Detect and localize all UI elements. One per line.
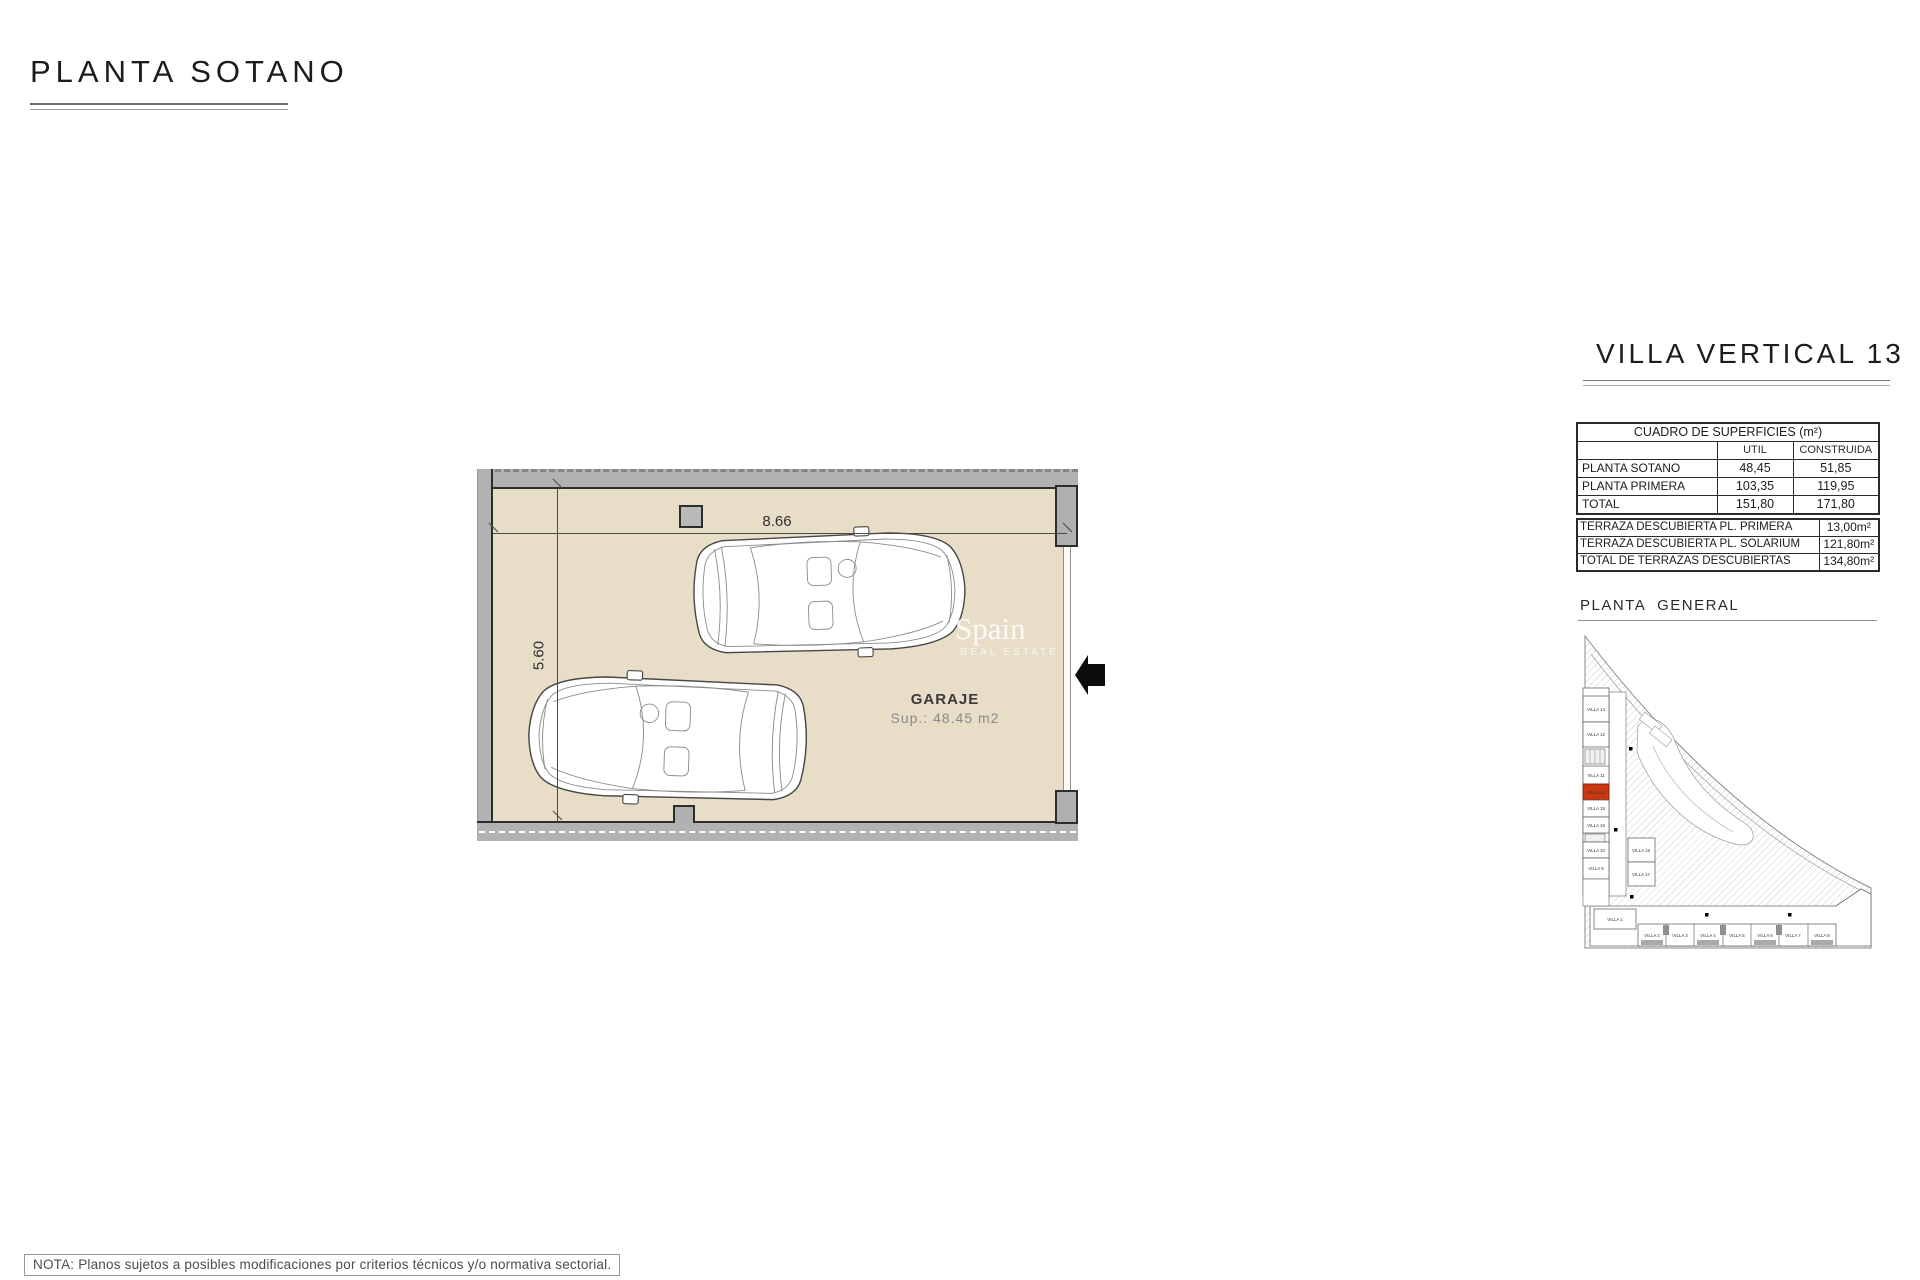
garage-front xyxy=(1641,940,1663,945)
page-title: PLANTA SOTANO xyxy=(30,54,349,90)
structural-column xyxy=(679,505,703,528)
surfaces-col-construida: CONSTRUIDA xyxy=(1793,442,1879,460)
row-value: 13,00m² xyxy=(1819,519,1879,537)
garage-door-opening xyxy=(1063,547,1071,790)
row-construida: 51,85 xyxy=(1793,460,1879,478)
surfaces-col-util: UTIL xyxy=(1717,442,1793,460)
table-row: TERRAZA DESCUBIERTA PL. PRIMERA 13,00m² xyxy=(1577,519,1879,537)
villa-label: VILLA 6 xyxy=(1757,933,1773,938)
wall-bottom-dashed-line xyxy=(479,831,1076,833)
dimension-line-horizontal xyxy=(493,533,1067,534)
row-util: 48,45 xyxy=(1717,460,1793,478)
watermark-brand: Spain xyxy=(955,613,1026,644)
wall-bottom xyxy=(477,821,1078,841)
garage-front xyxy=(1754,940,1776,945)
villa-label: VILLA 1 xyxy=(1607,917,1623,922)
terraces-table: TERRAZA DESCUBIERTA PL. PRIMERA 13,00m² … xyxy=(1576,518,1880,572)
utility-block xyxy=(1585,834,1605,842)
footer-note: NOTA: Planos sujetos a posibles modifica… xyxy=(24,1254,620,1276)
car-top-view-1 xyxy=(688,526,972,660)
surfaces-col-empty xyxy=(1577,442,1717,460)
plan-dot xyxy=(1788,913,1792,917)
villa-label: VILLA 16 xyxy=(1587,823,1605,828)
villa-label: VILLA 18 xyxy=(1632,848,1650,853)
site-plan-underline xyxy=(1578,620,1877,621)
row-label: TOTAL DE TERRAZAS DESCUBIERTAS xyxy=(1577,554,1819,572)
row-value: 121,80m² xyxy=(1819,537,1879,554)
wall-stub-bottom-right xyxy=(1055,790,1078,824)
table-row: TOTAL 151,80 171,80 xyxy=(1577,496,1879,515)
room-name: GARAJE xyxy=(865,691,1025,708)
plan-dot xyxy=(1630,895,1634,899)
garage-floor-plan: 8.66 5.60 Spain REAL ESTATE GARAJE Sup.:… xyxy=(477,469,1078,841)
villa-label: VILLA 3 xyxy=(1672,933,1688,938)
villa-label-highlighted: VILLA 13 xyxy=(1587,790,1605,795)
villa-label: VILLA 2 xyxy=(1644,933,1660,938)
stair-glyph xyxy=(1776,925,1782,935)
villa-title: VILLA VERTICAL 13 xyxy=(1596,338,1904,370)
table-row: PLANTA PRIMERA 103,35 119,95 xyxy=(1577,478,1879,496)
car-top-view-2 xyxy=(521,670,813,807)
wall-top xyxy=(477,469,1078,489)
plan-dot xyxy=(1629,747,1633,751)
villa-label: VILLA 8 xyxy=(1814,933,1830,938)
plan-sheet: PLANTA SOTANO xyxy=(0,0,1920,1280)
villa-label: VILLA 9 xyxy=(1588,866,1604,871)
villa-label: VILLA 15 xyxy=(1587,806,1605,811)
entry-arrow-icon xyxy=(1075,655,1105,695)
villa-label: VILLA 17 xyxy=(1632,872,1650,877)
surfaces-table-title: CUADRO DE SUPERFICIES (m²) xyxy=(1577,423,1879,442)
row-label: TERRAZA DESCUBIERTA PL. PRIMERA xyxy=(1577,519,1819,537)
villa-label: VILLA 4 xyxy=(1700,933,1716,938)
room-label-block: GARAJE Sup.: 48.45 m2 xyxy=(865,691,1025,726)
width-dimension-label: 8.66 xyxy=(747,513,807,530)
plan-dot xyxy=(1705,913,1709,917)
dimension-line-vertical xyxy=(557,489,558,821)
row-label: TERRAZA DESCUBIERTA PL. SOLARIUM xyxy=(1577,537,1819,554)
table-row: PLANTA SOTANO 48,45 51,85 xyxy=(1577,460,1879,478)
row-util: 151,80 xyxy=(1717,496,1793,515)
villa-label: VILLA 14 xyxy=(1587,707,1605,712)
table-row: TERRAZA DESCUBIERTA PL. SOLARIUM 121,80m… xyxy=(1577,537,1879,554)
wall-stub-top-right xyxy=(1055,485,1078,547)
row-value: 134,80m² xyxy=(1819,554,1879,572)
bottom-wall-pillar xyxy=(673,805,695,823)
villa-label: VILLA 7 xyxy=(1785,933,1801,938)
row-label: PLANTA PRIMERA xyxy=(1577,478,1717,496)
row-label: PLANTA SOTANO xyxy=(1577,460,1717,478)
garage-front xyxy=(1697,940,1719,945)
villa-label: VILLA 5 xyxy=(1729,933,1745,938)
plot-boundary xyxy=(1585,636,1871,948)
villa-label: VILLA 11 xyxy=(1587,773,1605,778)
stair-glyph xyxy=(1720,925,1726,935)
access-corridor xyxy=(1609,692,1626,896)
garage-front xyxy=(1811,940,1833,945)
villa-label: VILLA 10 xyxy=(1587,848,1605,853)
height-dimension-label: 5.60 xyxy=(531,635,548,677)
row-construida: 171,80 xyxy=(1793,496,1879,515)
site-plan-title: PLANTA GENERAL xyxy=(1580,597,1739,614)
villa-cell xyxy=(1583,879,1609,906)
page-title-underline xyxy=(30,103,288,110)
surfaces-table: CUADRO DE SUPERFICIES (m²) UTIL CONSTRUI… xyxy=(1576,422,1880,515)
table-row: TOTAL DE TERRAZAS DESCUBIERTAS 134,80m² xyxy=(1577,554,1879,572)
row-util: 103,35 xyxy=(1717,478,1793,496)
room-area: Sup.: 48.45 m2 xyxy=(865,710,1025,726)
site-plan-map: VILLA 14 VILLA 12 VILLA 11 VILLA 13 VILL… xyxy=(1578,626,1878,956)
watermark-tagline: REAL ESTATE xyxy=(960,647,1059,658)
villa-label: VILLA 12 xyxy=(1587,732,1605,737)
row-construida: 119,95 xyxy=(1793,478,1879,496)
stair-glyph xyxy=(1663,925,1669,935)
row-label: TOTAL xyxy=(1577,496,1717,515)
villa-title-underline xyxy=(1583,380,1890,386)
plan-dot xyxy=(1614,828,1618,832)
